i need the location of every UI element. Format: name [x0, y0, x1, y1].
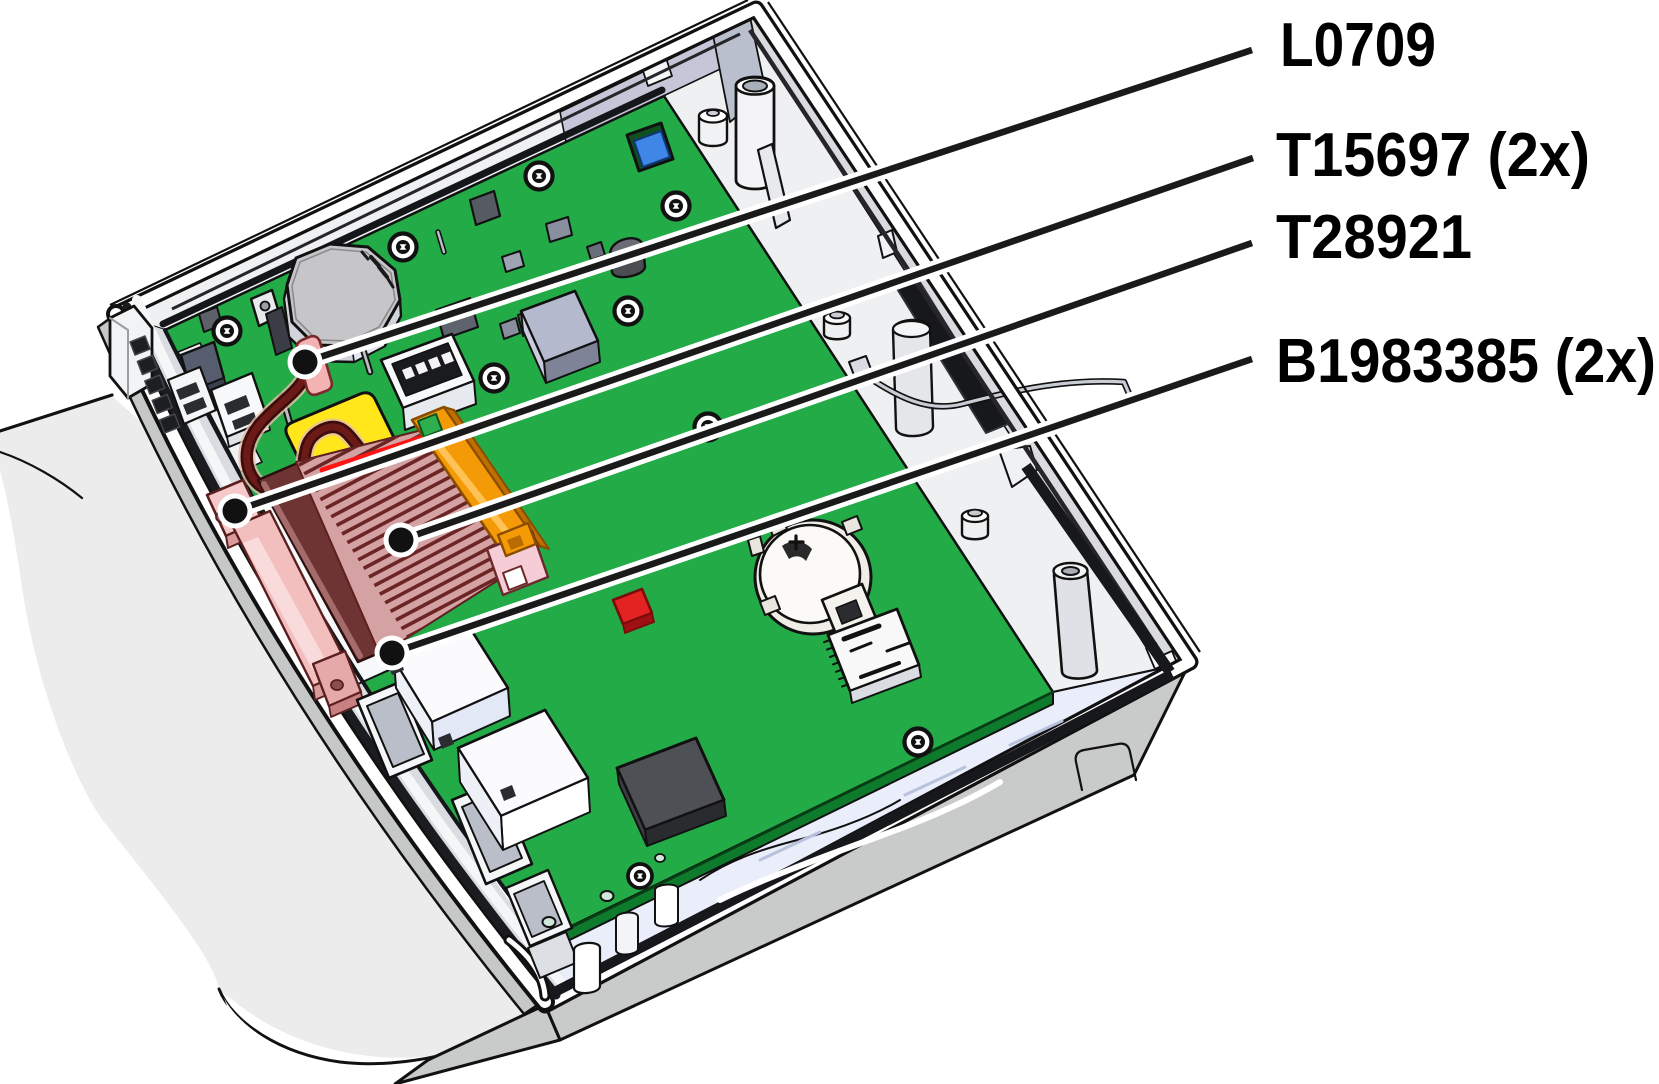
svg-text:B1983385 (2x): B1983385 (2x): [1276, 327, 1656, 396]
svg-text:T28921: T28921: [1276, 203, 1472, 272]
svg-text:L0709: L0709: [1280, 11, 1436, 80]
svg-text:T15697 (2x): T15697 (2x): [1276, 121, 1590, 190]
